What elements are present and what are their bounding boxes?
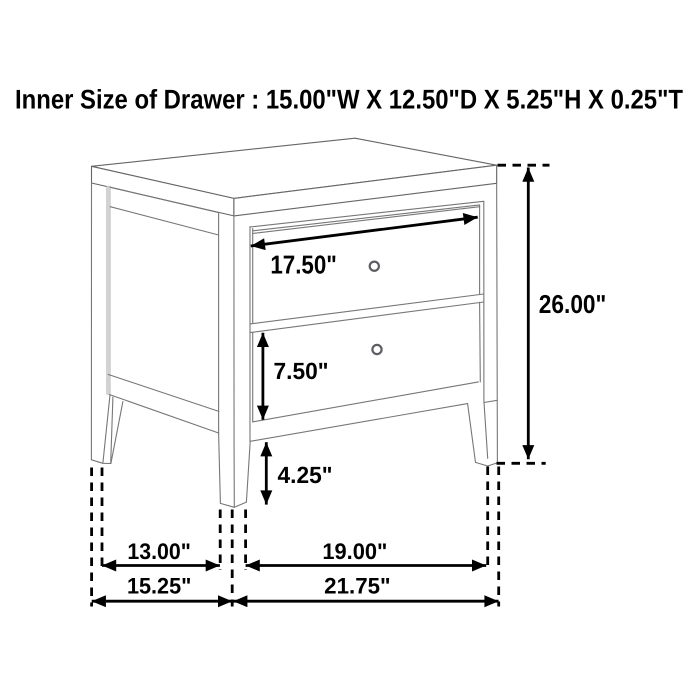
- svg-text:Inner Size of Drawer : 15.00"W: Inner Size of Drawer : 15.00"W X 12.50"D…: [15, 84, 683, 114]
- svg-text:4.25": 4.25": [278, 462, 333, 488]
- svg-text:15.25": 15.25": [127, 573, 192, 598]
- svg-text:26.00": 26.00": [539, 289, 607, 319]
- svg-text:21.75": 21.75": [324, 573, 391, 598]
- svg-text:7.50": 7.50": [274, 358, 329, 384]
- svg-text:19.00": 19.00": [322, 539, 387, 564]
- svg-text:13.00": 13.00": [127, 539, 191, 564]
- svg-text:17.50": 17.50": [270, 250, 337, 280]
